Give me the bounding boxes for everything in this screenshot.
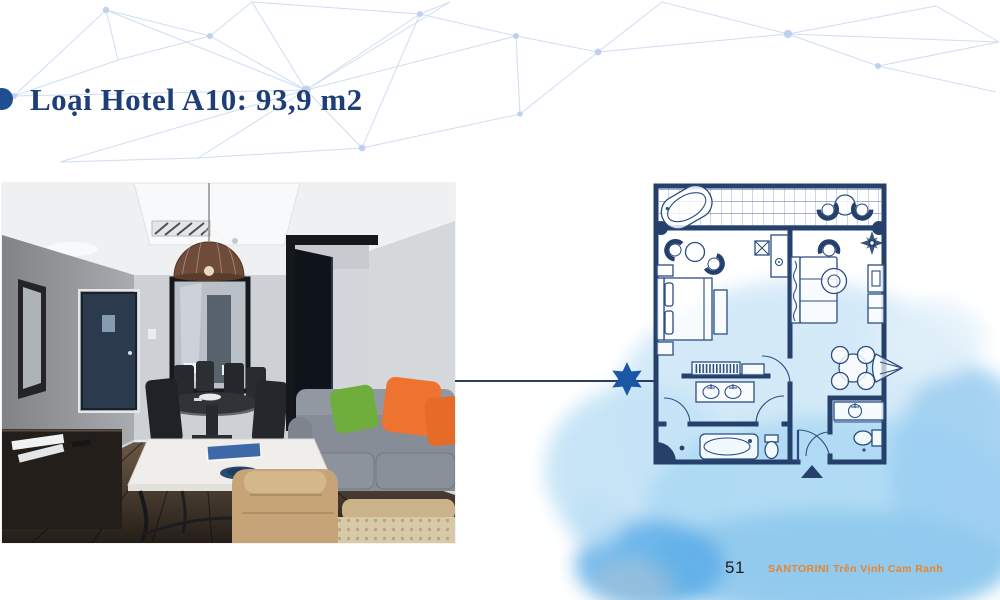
star-marker-icon: [609, 361, 645, 397]
wall-fan-icon: [873, 354, 902, 382]
floor-plan: [648, 178, 904, 480]
living-room-furniture: [755, 231, 902, 390]
page-title: Loại Hotel A10: 93,9 m2: [30, 82, 363, 118]
bedroom-furniture: [657, 238, 764, 375]
brand-name: SANTORINI: [768, 563, 829, 575]
brand-tagline: Trên Vịnh Cam Ranh: [833, 563, 943, 575]
slide-root: Loại Hotel A10: 93,9 m2: [0, 0, 1000, 600]
small-bathroom-fixtures: [834, 402, 884, 452]
brand-text: SANTORINITrên Vịnh Cam Ranh: [768, 563, 943, 575]
entry-arrow-icon: [801, 465, 823, 478]
page-number: 51: [725, 558, 745, 578]
room-photo: [2, 183, 455, 543]
